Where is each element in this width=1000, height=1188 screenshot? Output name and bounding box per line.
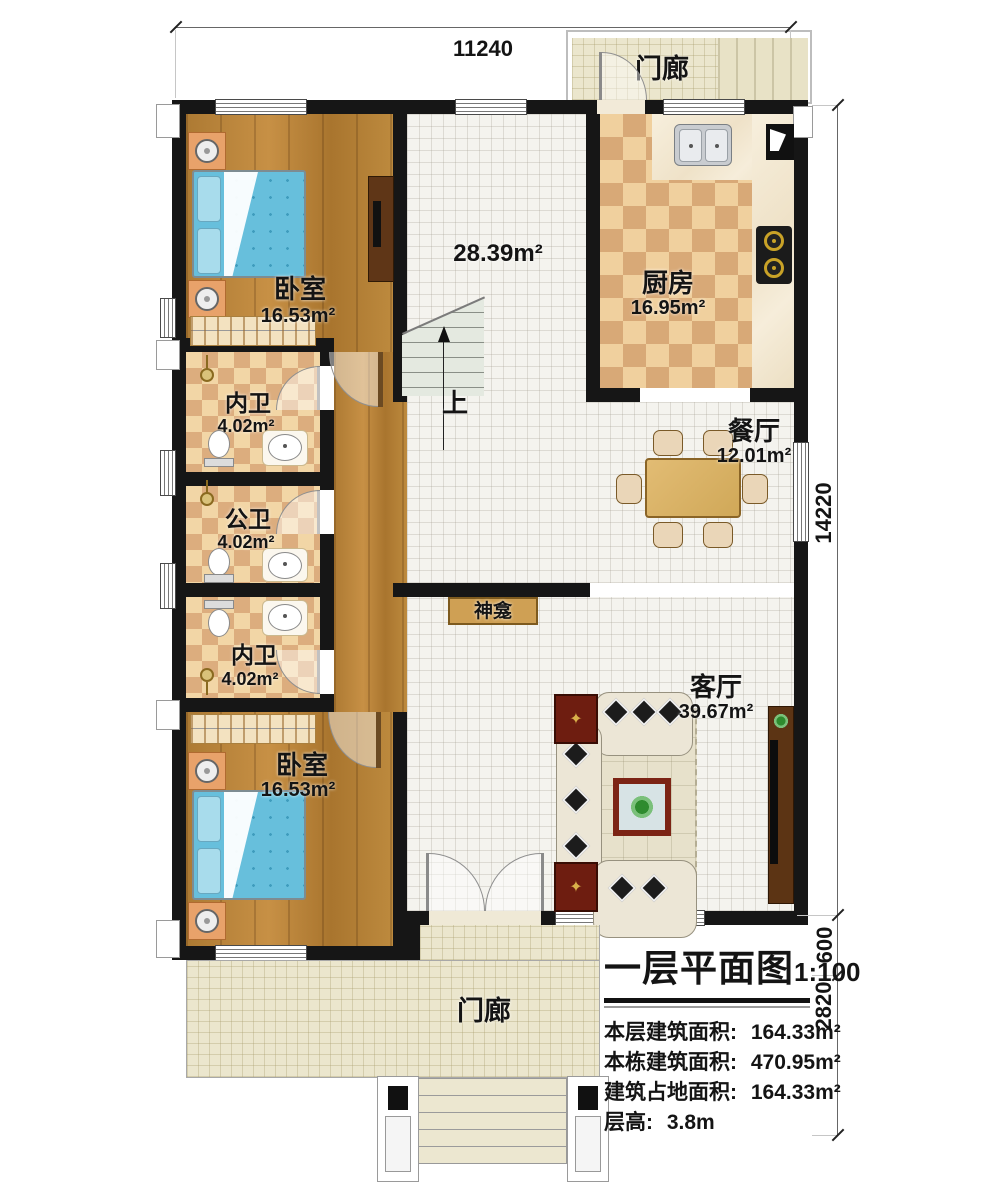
bedroom-bottom-name: 卧室 bbox=[276, 752, 328, 778]
pilaster-ne bbox=[793, 106, 813, 138]
entrance-door-leaf-right bbox=[541, 853, 544, 911]
bath-bottom-area: 4.02m² bbox=[221, 670, 278, 688]
column-cap bbox=[578, 1086, 598, 1110]
info-value: 470.95m² bbox=[751, 1051, 841, 1074]
lamp-icon bbox=[195, 139, 219, 163]
toilet-tank bbox=[204, 600, 234, 609]
window-bedroom-top bbox=[215, 99, 307, 115]
lamp-icon bbox=[195, 759, 219, 783]
nightstand bbox=[188, 280, 226, 318]
faucet-dot bbox=[283, 444, 287, 448]
bath-top-name: 内卫 bbox=[225, 392, 271, 415]
shrine-label: 神龛 bbox=[474, 602, 512, 621]
extension-line bbox=[812, 105, 837, 106]
pillow bbox=[197, 176, 221, 222]
kitchen-area: 16.95m² bbox=[631, 298, 706, 318]
burner bbox=[764, 258, 784, 278]
info-row: 层高: 3.8m bbox=[604, 1108, 844, 1138]
porch-bottom-label: 门廊 bbox=[457, 998, 511, 1025]
window-dining bbox=[793, 442, 809, 542]
wall-bedroom-bottom-east bbox=[393, 712, 407, 946]
extension-line bbox=[175, 30, 176, 98]
title-underline-thin bbox=[604, 1006, 810, 1008]
wall-bath-bedroom bbox=[186, 698, 334, 712]
info-row: 本层建筑面积: 164.33m² bbox=[604, 1018, 844, 1048]
pilaster-nw bbox=[156, 104, 180, 138]
living-name: 客厅 bbox=[690, 674, 742, 700]
nightstand bbox=[188, 132, 226, 170]
toilet-icon bbox=[208, 430, 230, 458]
toilet-icon bbox=[208, 609, 230, 637]
monitor-icon bbox=[373, 201, 381, 247]
info-label: 本层建筑面积: bbox=[604, 1021, 737, 1044]
sink-basin bbox=[705, 129, 728, 162]
wall-south-jog bbox=[406, 911, 420, 960]
info-value: 3.8m bbox=[667, 1111, 715, 1134]
dining-chair bbox=[653, 430, 683, 456]
plan-title: 一层平面图 bbox=[604, 938, 794, 992]
pillow bbox=[197, 796, 221, 842]
plan-scale: 1:100 bbox=[794, 957, 861, 988]
window-hall bbox=[455, 99, 527, 115]
burner bbox=[764, 231, 784, 251]
bedroom-top-name: 卧室 bbox=[274, 276, 326, 302]
stairs-up-arrow bbox=[438, 326, 450, 342]
stove-icon bbox=[756, 226, 792, 284]
dining-chair bbox=[616, 474, 642, 504]
title-block: 一层平面图 1:100 本层建筑面积: 164.33m² 本栋建筑面积: 470… bbox=[604, 938, 844, 1138]
side-table: ✦ bbox=[554, 862, 598, 912]
tv-icon bbox=[770, 740, 778, 864]
drain-dot bbox=[689, 144, 693, 148]
shower-icon bbox=[200, 668, 214, 682]
nightstand bbox=[188, 752, 226, 790]
wall-bath-divider-2 bbox=[186, 583, 334, 597]
wall-bedroom-top-east bbox=[393, 114, 407, 352]
dining-chair bbox=[742, 474, 768, 504]
pillow bbox=[197, 228, 221, 274]
title-row: 一层平面图 1:100 bbox=[604, 938, 844, 992]
hall-area-label: 28.39m² bbox=[453, 242, 542, 266]
dimension-line-top bbox=[175, 27, 790, 28]
dining-table bbox=[645, 458, 741, 518]
kitchen-name: 厨房 bbox=[642, 270, 694, 296]
bedroom-bottom-area: 16.53m² bbox=[261, 780, 336, 800]
lamp-icon bbox=[195, 909, 219, 933]
column-base bbox=[385, 1116, 411, 1172]
shower-hose bbox=[206, 480, 208, 493]
info-row: 本栋建筑面积: 470.95m² bbox=[604, 1048, 844, 1078]
faucet-dot bbox=[283, 614, 287, 618]
desk bbox=[368, 176, 394, 282]
column-cap bbox=[388, 1086, 408, 1110]
dining-chair bbox=[703, 522, 733, 548]
entrance-doorway bbox=[429, 911, 541, 925]
plant-icon bbox=[772, 712, 790, 730]
window-west-1 bbox=[160, 298, 176, 338]
wall-west bbox=[172, 100, 186, 960]
toilet-icon bbox=[208, 548, 230, 576]
kitchen-porch-doorway bbox=[597, 100, 645, 114]
title-underline-thick bbox=[604, 998, 810, 1003]
extension-line bbox=[797, 915, 837, 916]
window-west-2 bbox=[160, 450, 176, 496]
stairs-up-label: 上 bbox=[442, 390, 468, 416]
dining-chair bbox=[653, 522, 683, 548]
shower-icon bbox=[200, 368, 214, 382]
extension-line bbox=[790, 30, 791, 38]
column-base bbox=[575, 1116, 601, 1172]
porch-bottom-upper bbox=[420, 925, 600, 960]
window-bedroom-bottom bbox=[215, 945, 307, 961]
porch-top-label: 门廊 bbox=[635, 56, 689, 83]
wall-kitchen-west bbox=[586, 114, 600, 402]
shower-icon bbox=[200, 492, 214, 506]
info-value: 164.33m² bbox=[751, 1021, 841, 1044]
info-label: 建筑占地面积: bbox=[604, 1081, 737, 1104]
faucet-dot bbox=[283, 562, 287, 566]
info-label: 本栋建筑面积: bbox=[604, 1051, 737, 1074]
corner-notch bbox=[770, 129, 786, 151]
info-label: 层高: bbox=[604, 1111, 653, 1134]
shower-hose bbox=[206, 355, 208, 369]
bedroom-bottom-door-leaf bbox=[376, 712, 381, 768]
bath-mid-name: 公卫 bbox=[225, 508, 271, 531]
corner-counter bbox=[766, 124, 794, 160]
wall-kitchen-south-a bbox=[586, 388, 640, 402]
pilaster-w1 bbox=[156, 340, 180, 370]
wall-kitchen-south-b bbox=[750, 388, 794, 402]
plant-icon bbox=[628, 793, 656, 821]
dimension-top-value: 11240 bbox=[453, 36, 513, 62]
sink-basin bbox=[679, 129, 702, 162]
bedroom-top-area: 16.53m² bbox=[261, 306, 336, 326]
bedroom-top-door-leaf bbox=[378, 352, 383, 407]
toilet-tank bbox=[204, 574, 234, 583]
dimension-right-main: 14220 bbox=[811, 478, 837, 548]
window-kitchen bbox=[663, 99, 745, 115]
window-west-3 bbox=[160, 563, 176, 609]
porch-top-stripe bbox=[718, 38, 808, 100]
shower-hose bbox=[206, 682, 208, 695]
lamp-icon bbox=[195, 287, 219, 311]
wall-bath-divider-1 bbox=[186, 472, 334, 486]
side-table: ✦ bbox=[554, 694, 598, 744]
toilet-tank bbox=[204, 458, 234, 467]
dining-name: 餐厅 bbox=[728, 418, 780, 444]
porch-bottom-floor bbox=[186, 960, 600, 1078]
kitchen-sink-icon bbox=[674, 124, 732, 166]
bath-bottom-name: 内卫 bbox=[231, 644, 277, 667]
info-value: 164.33m² bbox=[751, 1081, 841, 1104]
pilaster-sw bbox=[156, 920, 180, 958]
pillow bbox=[197, 848, 221, 894]
info-row: 建筑占地面积: 164.33m² bbox=[604, 1078, 844, 1108]
sofa-bottom bbox=[593, 860, 697, 938]
drain-dot bbox=[715, 144, 719, 148]
nightstand bbox=[188, 902, 226, 940]
wall-shrine bbox=[393, 583, 590, 597]
entry-steps bbox=[417, 1078, 567, 1164]
dining-area: 12.01m² bbox=[717, 446, 792, 466]
wardrobe-bottom bbox=[190, 714, 316, 744]
pilaster-w2 bbox=[156, 700, 180, 730]
living-area: 39.67m² bbox=[679, 702, 754, 722]
floor-plan: 门廊 bbox=[0, 0, 1000, 1188]
